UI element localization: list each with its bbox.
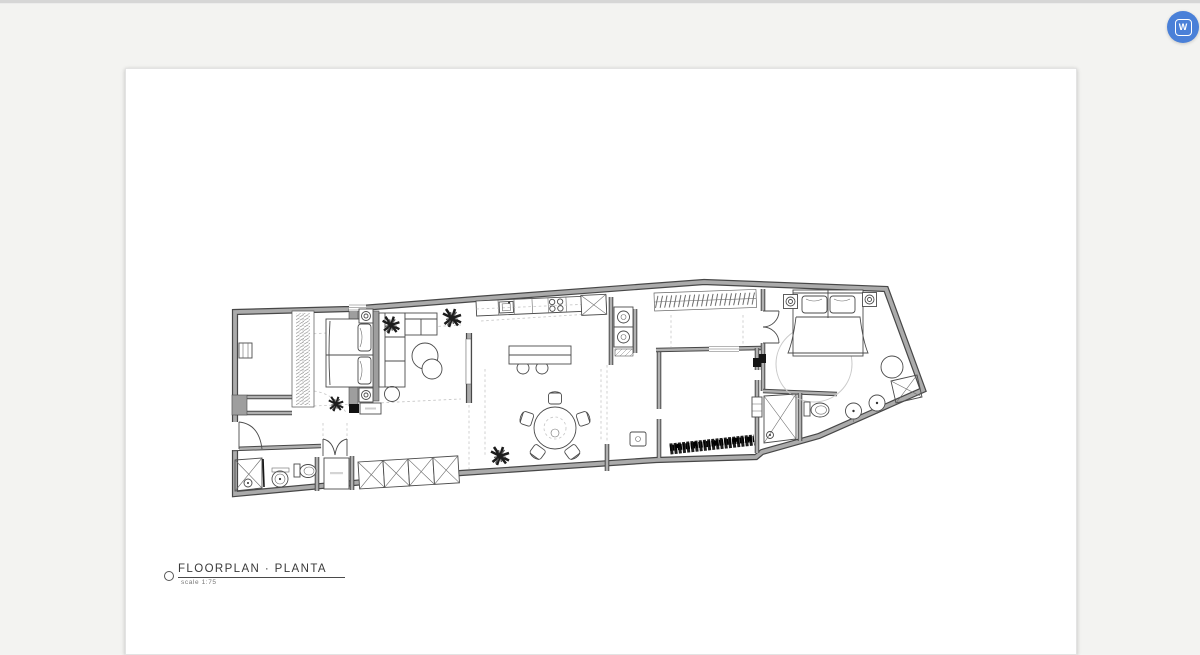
dining-area [491, 392, 646, 465]
doors [239, 311, 779, 456]
w-badge-icon: W [1175, 19, 1192, 36]
master-bathroom [764, 375, 922, 443]
interior-walls [232, 289, 837, 491]
w-badge-button[interactable]: W [1167, 11, 1199, 43]
wardrobe-closet [239, 311, 314, 407]
top-bar [0, 0, 1200, 4]
courtyard-patio [654, 289, 757, 449]
drawing-sheet: FLOORPLAN · PLANTA scale 1:75 [125, 68, 1077, 655]
plan-title: FLOORPLAN · PLANTA [178, 563, 345, 578]
master-bedroom [776, 290, 903, 402]
north-marker-icon [164, 571, 174, 581]
title-block: FLOORPLAN · PLANTA scale 1:75 [164, 563, 345, 586]
plan-scale: scale 1:75 [181, 579, 345, 586]
utility-and-closets [324, 456, 459, 489]
floorplan-drawing [223, 273, 935, 506]
